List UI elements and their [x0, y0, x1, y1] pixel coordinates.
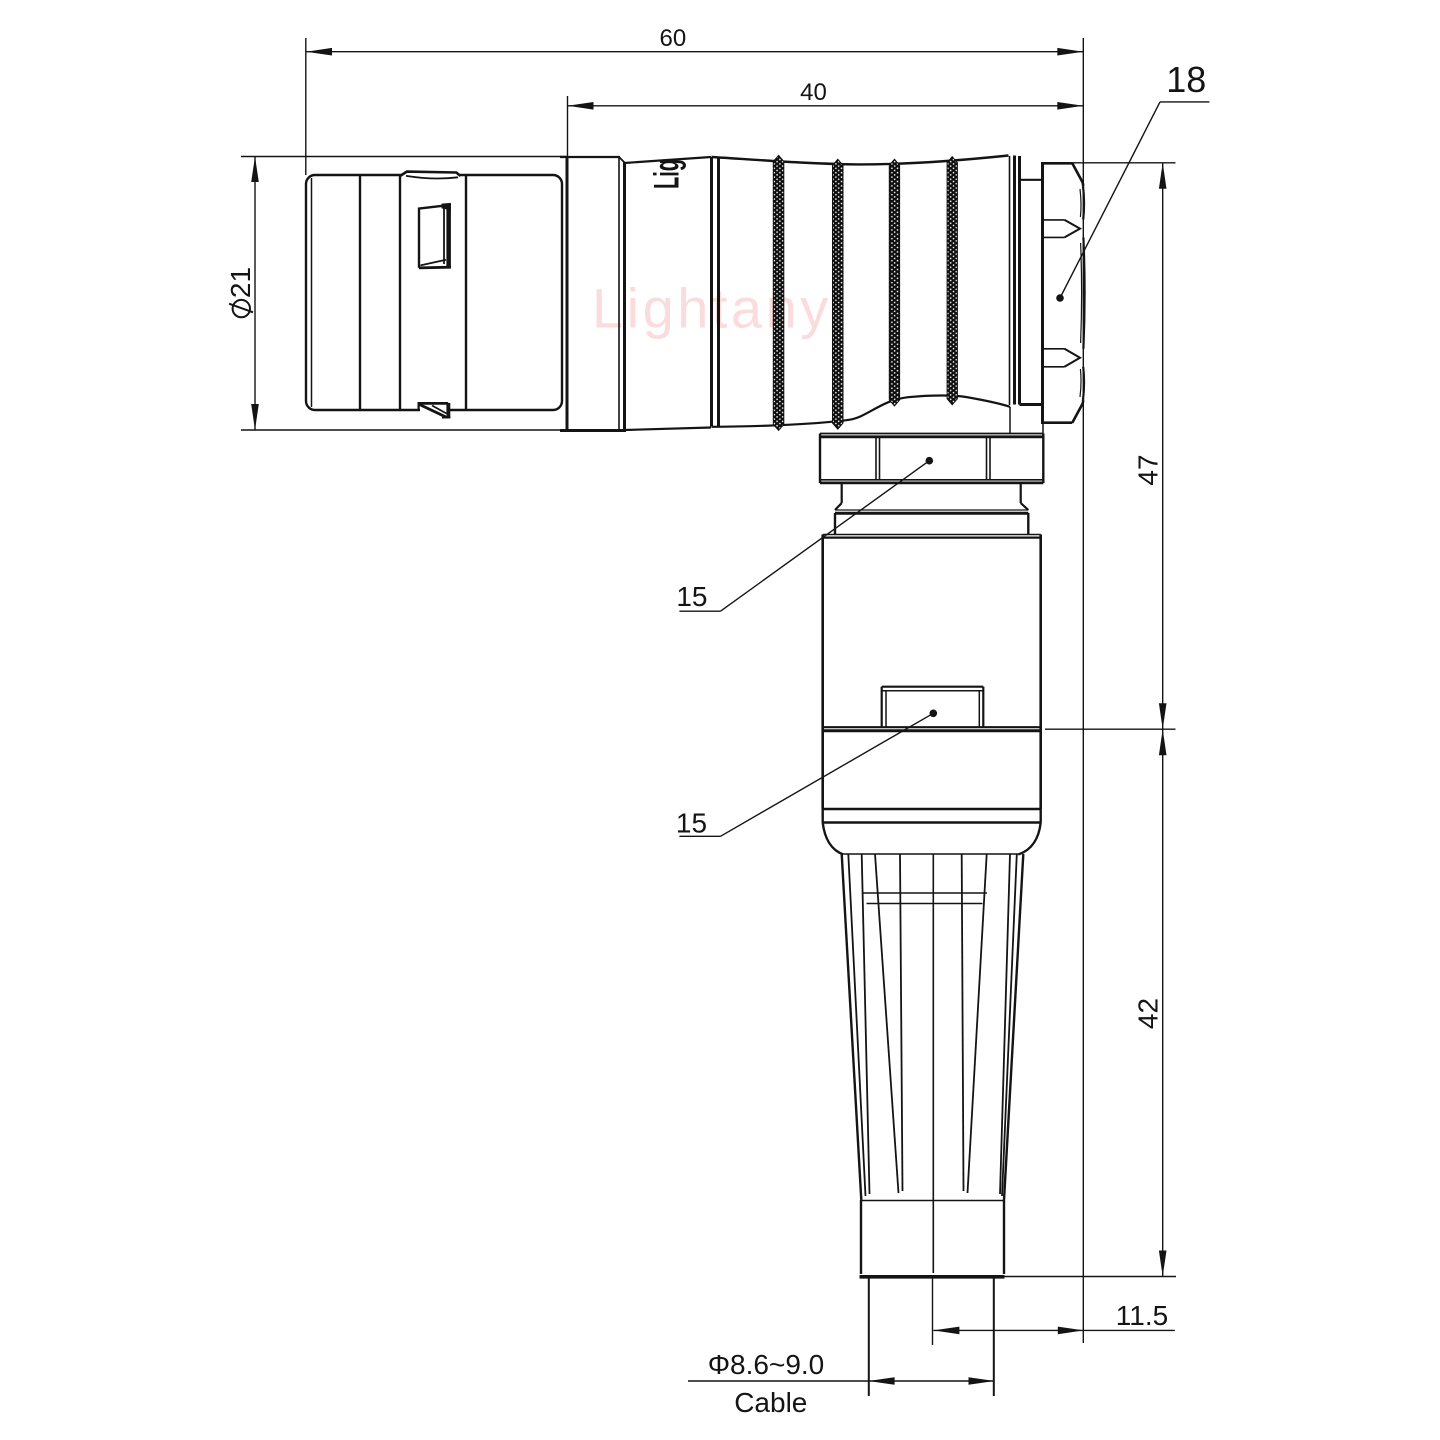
svg-text:Φ8.6~9.0: Φ8.6~9.0 — [708, 1349, 825, 1380]
svg-text:Lig: Lig — [648, 159, 687, 189]
svg-text:15: 15 — [676, 581, 707, 612]
svg-text:40: 40 — [800, 79, 827, 106]
svg-text:15: 15 — [676, 808, 707, 839]
svg-text:47: 47 — [1133, 454, 1164, 485]
svg-text:11.5: 11.5 — [1116, 1300, 1168, 1331]
svg-text:Cable: Cable — [734, 1387, 807, 1418]
svg-text:60: 60 — [660, 25, 687, 52]
svg-text:18: 18 — [1166, 59, 1206, 100]
svg-text:42: 42 — [1133, 998, 1164, 1029]
svg-text:21: 21 — [225, 267, 256, 298]
